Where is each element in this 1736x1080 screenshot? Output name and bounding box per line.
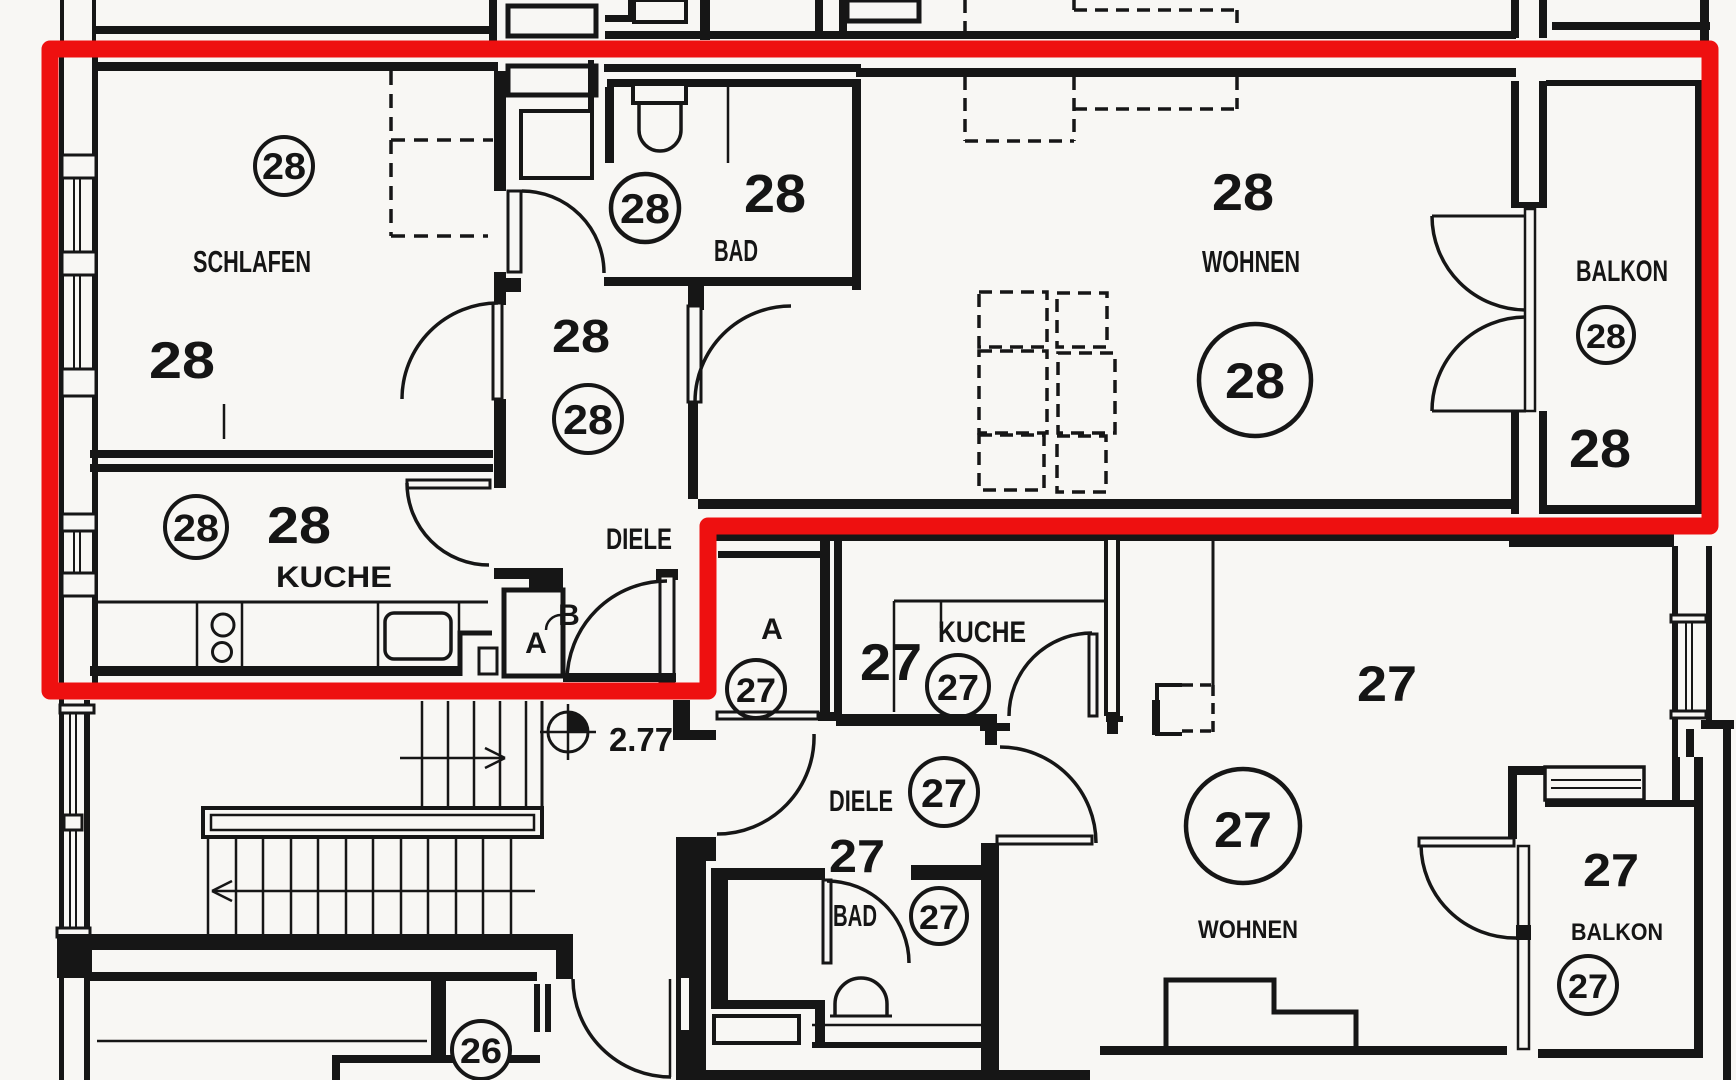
svg-text:BAD: BAD (714, 233, 758, 268)
svg-text:A: A (525, 627, 547, 660)
svg-text:27: 27 (937, 667, 979, 708)
svg-text:BALKON: BALKON (1576, 255, 1668, 288)
svg-text:BAD: BAD (833, 898, 877, 933)
svg-text:WOHNEN: WOHNEN (1198, 916, 1298, 944)
svg-text:27: 27 (1214, 802, 1272, 858)
svg-text:28: 28 (744, 164, 806, 224)
svg-text:27: 27 (919, 899, 959, 937)
svg-text:28: 28 (1225, 353, 1285, 409)
svg-text:WOHNEN: WOHNEN (1202, 244, 1300, 279)
svg-text:28: 28 (149, 332, 215, 390)
svg-text:27: 27 (921, 772, 967, 816)
svg-text:27: 27 (829, 830, 885, 882)
svg-text:DIELE: DIELE (829, 785, 893, 818)
svg-text:B: B (558, 599, 580, 632)
svg-text:27: 27 (1583, 844, 1639, 896)
svg-text:2.77: 2.77 (609, 721, 673, 758)
svg-text:BALKON: BALKON (1571, 919, 1663, 946)
svg-text:27: 27 (860, 634, 922, 692)
svg-text:28: 28 (552, 310, 610, 362)
svg-text:28: 28 (1569, 419, 1631, 479)
svg-text:28: 28 (262, 146, 306, 187)
svg-text:SCHLAFEN: SCHLAFEN (193, 244, 311, 279)
svg-text:A: A (761, 613, 783, 646)
svg-text:27: 27 (1357, 656, 1417, 712)
svg-text:KUCHE: KUCHE (276, 561, 392, 594)
svg-text:28: 28 (563, 396, 613, 443)
svg-text:26: 26 (460, 1032, 502, 1071)
svg-text:28: 28 (1586, 318, 1626, 356)
svg-text:28: 28 (1212, 164, 1274, 222)
svg-text:28: 28 (267, 497, 331, 555)
svg-text:27: 27 (1568, 968, 1608, 1006)
svg-text:KUCHE: KUCHE (938, 616, 1026, 649)
svg-text:28: 28 (173, 508, 219, 550)
svg-text:28: 28 (620, 185, 670, 232)
svg-text:DIELE: DIELE (606, 523, 672, 556)
svg-text:27: 27 (736, 672, 776, 710)
